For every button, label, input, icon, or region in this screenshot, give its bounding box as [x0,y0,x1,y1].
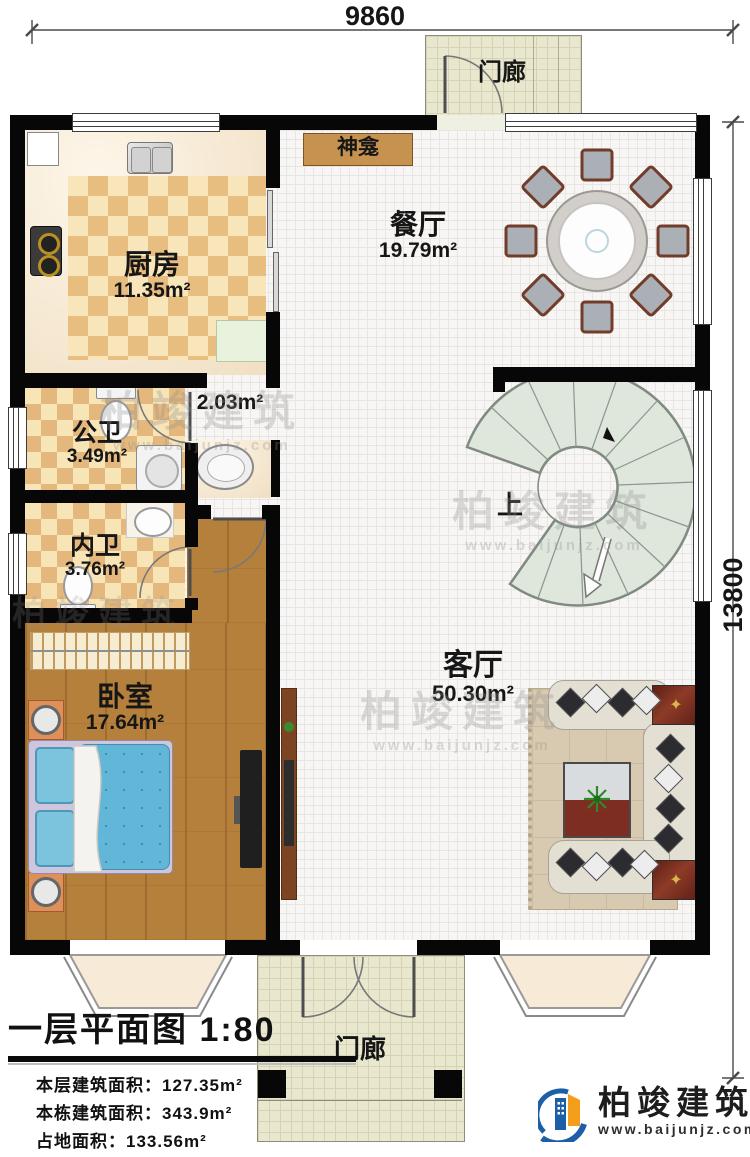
door-threshold [437,115,505,130]
watermark: 柏竣建筑 [12,586,184,635]
sliding-door-panel [273,252,279,312]
watermark: 柏竣建筑www.baijunjz.com [360,678,564,754]
watermark: 柏竣建筑www.baijunjz.com [452,478,656,554]
end-table: ✦ [652,860,700,900]
plan-info-block: 一层平面图 1:80 本层建筑面积：127.35m² 本栋建筑面积：343.9m… [8,1002,356,1157]
dimension-top-label: 9860 [325,2,425,30]
dimension-right-label: 13800 [719,553,749,637]
watermark: 柏竣建筑www.baijunjz.com [100,378,304,454]
logo-website: www.baijunjz.com [598,1121,750,1137]
dining-label: 餐厅 [348,210,488,239]
bedroom-tv [240,750,262,868]
info-line: 本栋建筑面积：343.9m² [36,1099,356,1124]
coffee-table [563,762,631,838]
logo-company-name: 柏竣建筑 [598,1086,750,1121]
info-line: 本层建筑面积：127.35m² [36,1071,356,1096]
bedroom-area: 17.64m² [55,712,195,734]
kitchen-corner-cabinet [27,132,59,166]
kitchen-window [72,113,220,132]
bed-pillow [35,810,75,867]
floor-plan: ✦ ✦ [0,0,750,1157]
kitchen-sink [127,142,173,174]
bedroom-entry-floor [187,519,266,623]
bedroom-tv-stand [234,796,240,824]
kitchen-cabinet [216,320,268,362]
living-label: 客厅 [398,650,548,682]
bed-mattress [78,744,170,870]
shrine-label: 神龛 [303,137,413,159]
kitchen-stove [30,226,62,276]
sliding-door-panel [267,190,273,248]
nightstand [28,872,64,912]
stair-window [693,390,712,602]
company-logo: 柏竣建筑 www.baijunjz.com [538,1086,750,1142]
inner-bath-label: 内卫 [43,533,147,559]
dining-area: 19.79m² [348,240,488,262]
kitchen-label: 厨房 [82,250,222,279]
kitchen-area: 11.35m² [82,280,222,302]
end-table: ✦ [652,685,700,725]
console-plant [284,722,294,732]
living-tv [284,760,294,846]
wardrobe [30,632,190,670]
info-line: 占地面积：133.56m² [36,1127,356,1152]
plan-title: 一层平面图 1:80 [8,1002,356,1051]
bedroom-label: 卧室 [55,682,195,711]
dining-right-window [693,178,712,325]
dining-top-window [505,113,697,132]
top-porch-label: 门廊 [432,60,572,85]
inner-bath-area: 3.76m² [43,560,147,580]
living-bay-window [494,955,656,1016]
public-bath-window [8,407,27,469]
bed-pillow [35,747,75,804]
logo-icon [538,1086,592,1142]
